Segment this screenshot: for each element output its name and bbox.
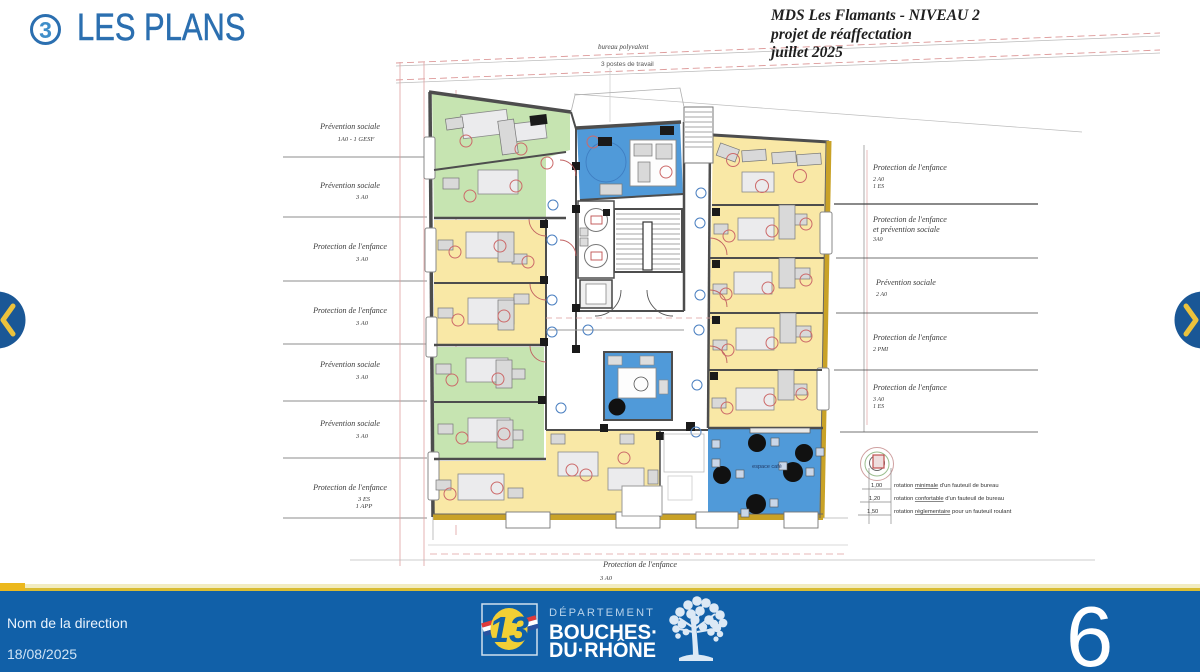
svg-text:Protection de l'enfance: Protection de l'enfance xyxy=(312,483,387,492)
svg-text:2 A0: 2 A0 xyxy=(876,292,887,298)
svg-text:1 APP: 1 APP xyxy=(356,503,373,510)
svg-text:Protection de l'enfance: Protection de l'enfance xyxy=(312,306,387,315)
svg-text:Protection de l'enfance: Protection de l'enfance xyxy=(312,242,387,251)
svg-text:3 A0: 3 A0 xyxy=(355,320,369,327)
svg-text:juillet 2025: juillet 2025 xyxy=(768,44,843,61)
svg-text:Prévention sociale: Prévention sociale xyxy=(875,278,936,287)
svg-text:DÉPARTEMENT: DÉPARTEMENT xyxy=(549,606,655,619)
svg-text:3 A0: 3 A0 xyxy=(355,433,369,440)
svg-text:3A0: 3A0 xyxy=(872,237,883,243)
svg-text:MDS Les Flamants - NIVEAU 2: MDS Les Flamants - NIVEAU 2 xyxy=(770,7,980,24)
svg-text:3 A0: 3 A0 xyxy=(355,194,369,201)
svg-text:3 ES: 3 ES xyxy=(357,496,371,503)
svg-text:3 A0: 3 A0 xyxy=(355,374,369,381)
svg-text:2 PMI: 2 PMI xyxy=(873,347,889,353)
svg-text:3 postes de travail: 3 postes de travail xyxy=(601,61,654,68)
svg-text:3 A0: 3 A0 xyxy=(355,256,369,263)
svg-text:1 ES: 1 ES xyxy=(873,404,884,410)
svg-text:bureau polyvalent: bureau polyvalent xyxy=(598,43,650,51)
svg-text:Prévention sociale: Prévention sociale xyxy=(319,122,380,131)
svg-text:rotation minimale d'un fauteui: rotation minimale d'un fauteuil de burea… xyxy=(894,483,999,489)
svg-text:et prévention sociale: et prévention sociale xyxy=(873,225,940,234)
svg-text:rotation confortable d'un faut: rotation confortable d'un fauteuil de bu… xyxy=(894,496,1004,502)
svg-text:Prévention sociale: Prévention sociale xyxy=(319,360,380,369)
svg-text:2 A0: 2 A0 xyxy=(873,177,884,183)
svg-text:espace café: espace café xyxy=(752,464,782,470)
svg-text:Protection de l'enfance: Protection de l'enfance xyxy=(602,560,677,569)
svg-text:1,50: 1,50 xyxy=(867,509,878,515)
svg-text:projet de réaffectation: projet de réaffectation xyxy=(769,26,912,43)
svg-text:Protection de l'enfance: Protection de l'enfance xyxy=(872,215,947,224)
svg-text:rotation réglementaire pour un: rotation réglementaire pour un fauteuil … xyxy=(894,509,1012,515)
svg-text:3 A0: 3 A0 xyxy=(599,575,613,582)
svg-text:1,00: 1,00 xyxy=(871,483,882,489)
svg-text:3 A0: 3 A0 xyxy=(872,397,884,403)
svg-text:13: 13 xyxy=(489,609,529,650)
svg-text:Protection de l'enfance: Protection de l'enfance xyxy=(872,383,947,392)
svg-text:DU·RHÔNE: DU·RHÔNE xyxy=(549,638,656,662)
svg-text:Protection de l'enfance: Protection de l'enfance xyxy=(872,333,947,342)
svg-text:Prévention sociale: Prévention sociale xyxy=(319,181,380,190)
svg-text:Protection de l'enfance: Protection de l'enfance xyxy=(872,163,947,172)
svg-text:1,20: 1,20 xyxy=(869,496,880,502)
svg-text:1 ES: 1 ES xyxy=(873,184,884,190)
svg-text:1A0 - 1 GESF: 1A0 - 1 GESF xyxy=(338,136,376,143)
svg-text:Prévention sociale: Prévention sociale xyxy=(319,419,380,428)
